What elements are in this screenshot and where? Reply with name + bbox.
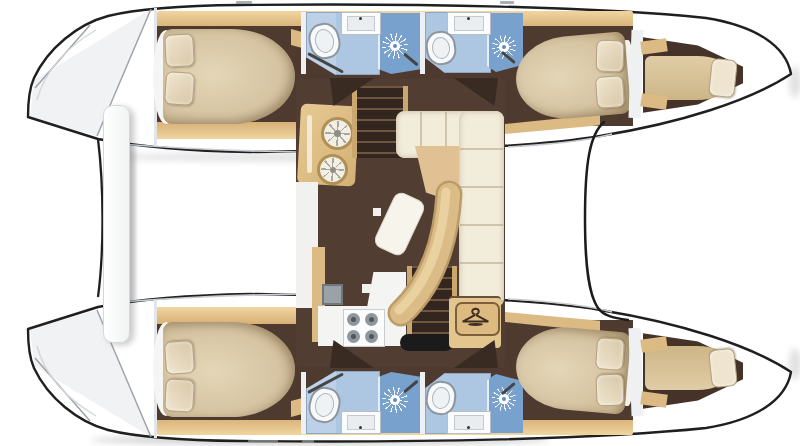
galley-burner-icon [317,154,348,185]
fridge [322,284,343,305]
aft-cabin-pillow [164,378,195,412]
forepeak-pillow [708,348,738,389]
faucet-dot [467,426,470,429]
stove-burner-icon [365,313,378,326]
bathroom-wall [301,372,306,434]
stairs-base [400,334,454,351]
faucet-dot [359,426,362,429]
coat-hanger-icon [459,306,492,328]
galley-slot [307,115,312,173]
floor-hatch [373,208,381,216]
forward-cabin-pillow [595,337,625,371]
stove-burner-icon [347,313,360,326]
galley-burner-icon [321,117,354,150]
edge-mark [302,440,314,443]
forward-cabin-pillow [595,374,624,407]
aft-cabin-pillow [164,340,195,375]
edge-mark [248,440,278,443]
aft-crossbar [103,105,130,343]
sofa-right-section [459,111,504,307]
stove-burner-icon [347,330,360,343]
floor-hatch [362,284,371,293]
stove-burner-icon [365,330,378,343]
edge-mark [236,1,252,4]
edge-mark [500,1,514,4]
bathroom-wall [420,372,425,434]
wardrobe-plaque [455,302,500,336]
floor-plan-canvas [0,0,800,446]
